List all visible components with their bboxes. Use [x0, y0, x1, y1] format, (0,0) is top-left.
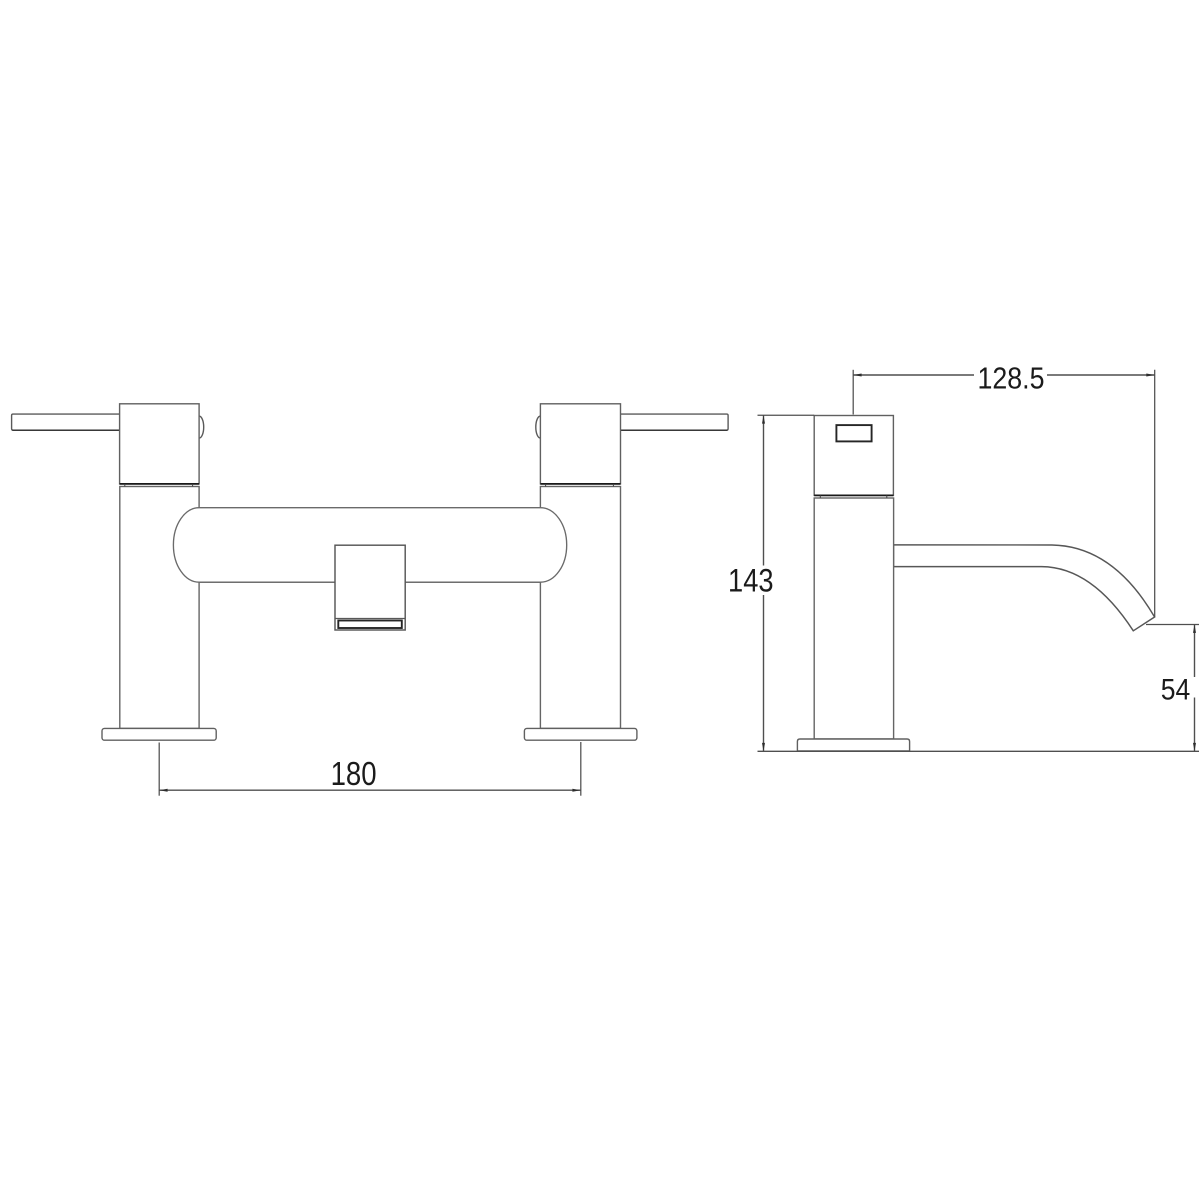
svg-text:128.5: 128.5	[978, 361, 1045, 396]
svg-text:180: 180	[331, 755, 377, 792]
svg-text:54: 54	[1161, 674, 1191, 707]
svg-text:143: 143	[728, 562, 774, 598]
